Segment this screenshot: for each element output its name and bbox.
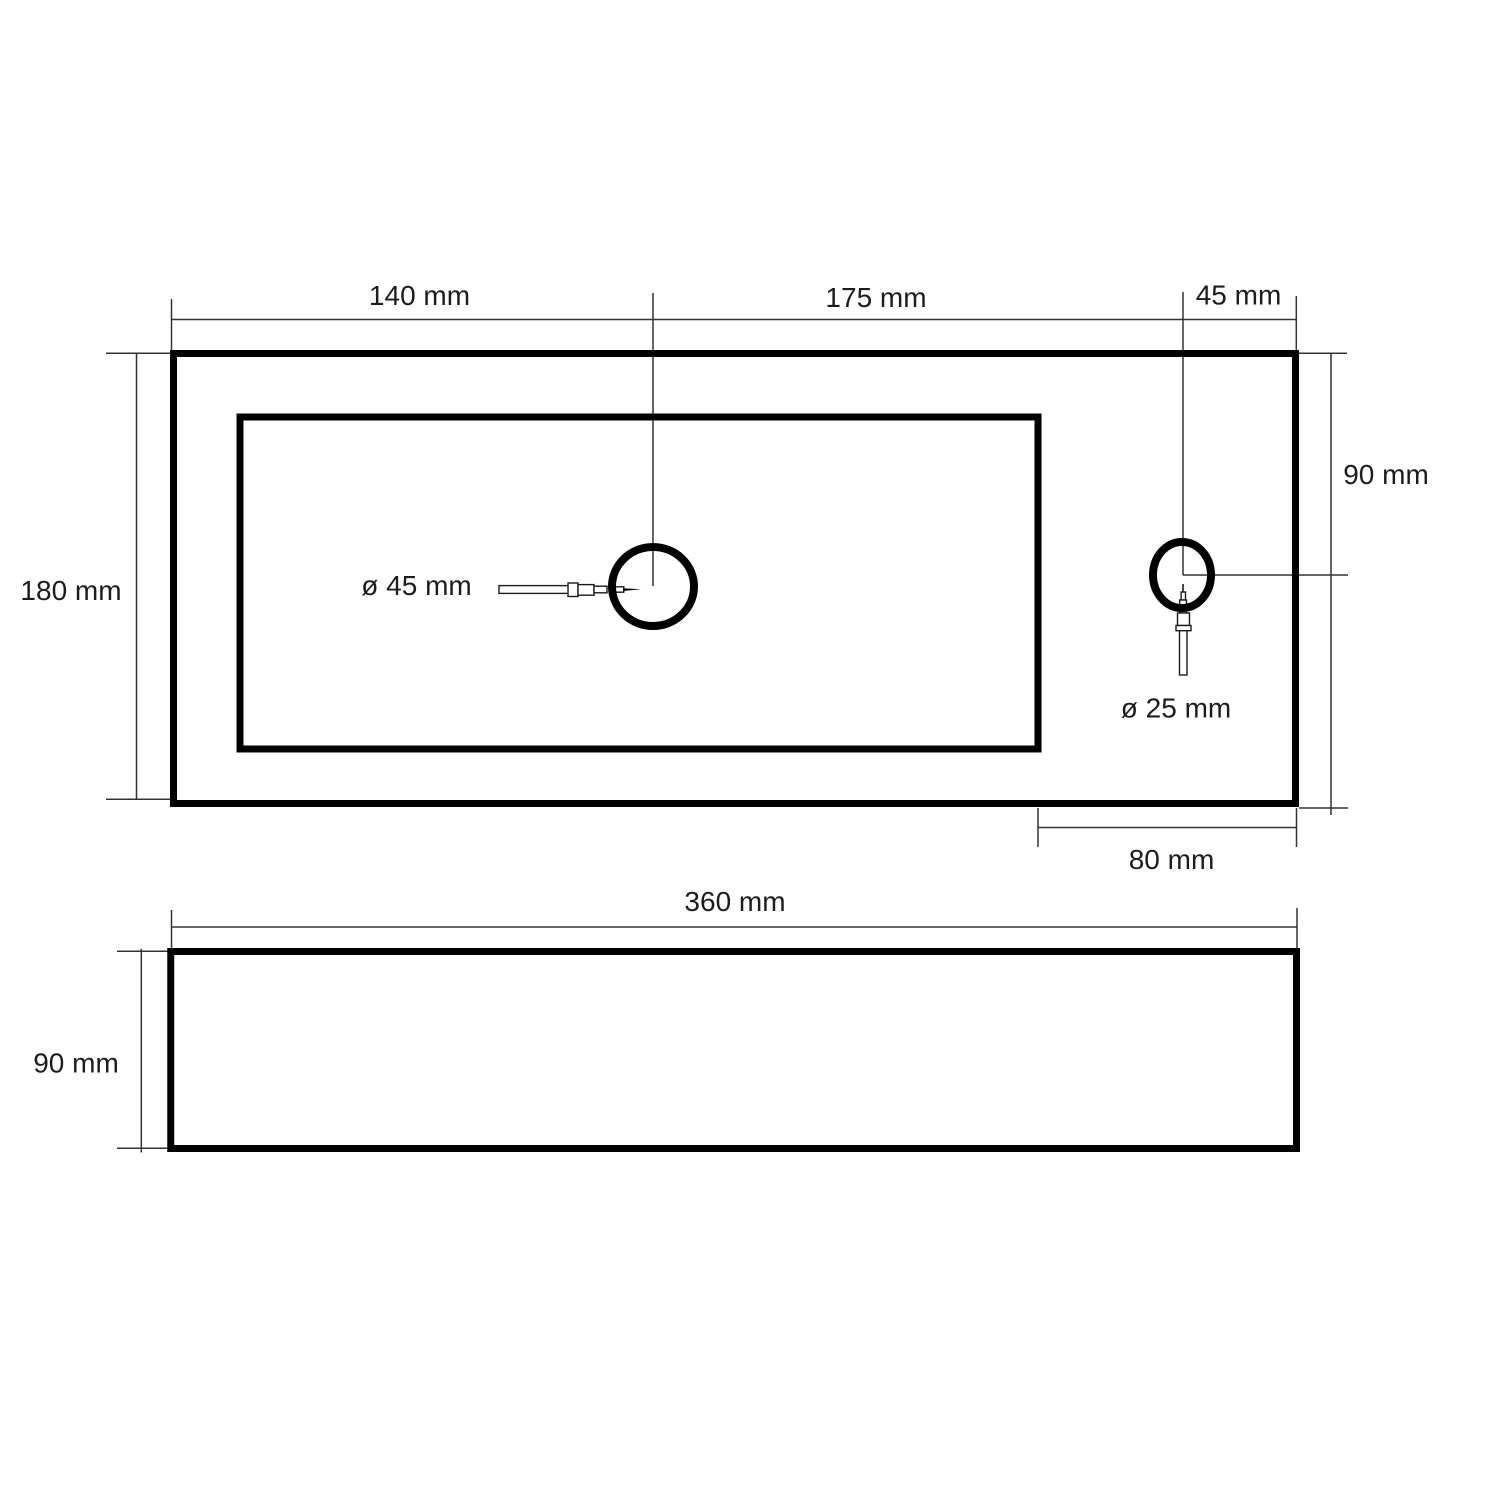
svg-text:45 mm: 45 mm (1196, 280, 1282, 311)
svg-text:ø 25 mm: ø 25 mm (1121, 693, 1231, 724)
svg-text:90 mm: 90 mm (1343, 459, 1429, 490)
svg-text:175 mm: 175 mm (825, 282, 926, 313)
svg-text:90 mm: 90 mm (33, 1048, 119, 1079)
svg-text:140 mm: 140 mm (369, 280, 470, 311)
svg-text:80 mm: 80 mm (1129, 844, 1215, 875)
svg-text:ø 45 mm: ø 45 mm (361, 570, 471, 601)
svg-text:360 mm: 360 mm (684, 886, 785, 917)
svg-text:180 mm: 180 mm (20, 575, 121, 606)
